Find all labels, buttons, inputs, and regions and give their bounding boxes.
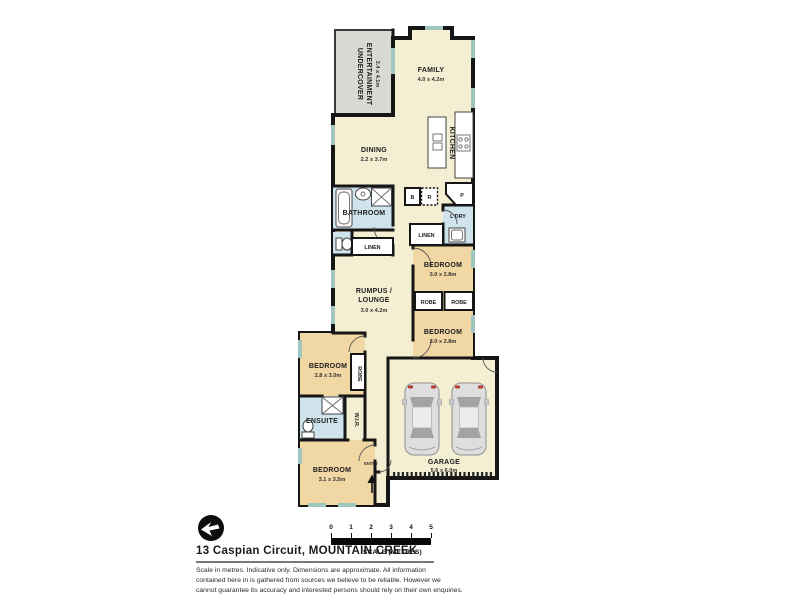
- bathroom-label: BATHROOM: [343, 210, 386, 217]
- scale-tick-2: 2: [369, 524, 373, 531]
- undercover-dims: 3.4 x 4.1m: [374, 61, 380, 88]
- scale-tick-1: 1: [349, 524, 353, 531]
- disclaimer-line: contained here in is gathered from sourc…: [196, 576, 446, 586]
- property-address: 13 Caspian Circuit, MOUNTAIN CREEK: [196, 545, 418, 557]
- wir-label: W.I.R.: [353, 413, 359, 428]
- garage-dims: 5.6 x 6.0m: [431, 468, 458, 474]
- bedroom-se-dims: 3.0 x 2.8m: [430, 339, 457, 345]
- ensuite-label: ENSUITE: [306, 418, 338, 425]
- undercover-label: UNDERCOVER: [356, 48, 363, 100]
- laundry-label: L'DRY: [450, 214, 466, 220]
- dining-label: DINING: [361, 147, 387, 154]
- pantry-label: P: [460, 193, 464, 199]
- scale-tick-4: 4: [409, 524, 413, 531]
- scale-tick-5: 5: [429, 524, 433, 531]
- bedroom-ne-dims: 3.0 x 2.8m: [430, 272, 457, 278]
- scale-bar-rule: [331, 538, 431, 545]
- bedroom-ne-label: BEDROOM: [424, 262, 462, 269]
- bedroom-sw-label: BEDROOM: [313, 467, 351, 474]
- kitchen-label: KITCHEN: [448, 127, 455, 160]
- dining-dims: 2.2 x 3.7m: [361, 157, 388, 163]
- disclaimer: Scale in metres. Indicative only. Dimens…: [196, 566, 446, 596]
- island-bench: [428, 117, 446, 168]
- floorplan-page: UNDERCOVER ENTERTAINMENT 3.4 x 4.1m FAMI…: [0, 0, 800, 600]
- appliance-r-label: R: [428, 195, 432, 201]
- bedroom-se-label: BEDROOM: [424, 329, 462, 336]
- robe-se-label: ROBE: [451, 300, 467, 306]
- bedroom-w-dims: 2.8 x 3.0m: [315, 373, 342, 379]
- scale-tick-3: 3: [389, 524, 393, 531]
- rumpus-dims: 3.0 x 4.2m: [361, 308, 388, 314]
- appliance-b-label: B: [411, 195, 415, 201]
- undercover-label2: ENTERTAINMENT: [365, 43, 372, 106]
- room-undercover-entertainment: [335, 30, 393, 115]
- floorplan-drawing: UNDERCOVER ENTERTAINMENT 3.4 x 4.1m FAMI…: [0, 0, 800, 600]
- family-label: FAMILY: [418, 67, 445, 74]
- scale-tick-0: 0: [329, 524, 333, 531]
- disclaimer-line: Scale in metres. Indicative only. Dimens…: [196, 566, 446, 576]
- robe-ne-label: ROBE: [421, 300, 437, 306]
- car-icon: [450, 383, 489, 455]
- divider-rule: [196, 561, 434, 563]
- disclaimer-line: cannot guarantee its accuracy and intere…: [196, 586, 446, 596]
- vanity-icon: [356, 188, 371, 200]
- ensuite-toilet-icon: [302, 432, 314, 438]
- linen-right-label: LINEN: [418, 233, 434, 239]
- garage-label: GARAGE: [428, 459, 460, 466]
- rumpus-label: RUMPUS /: [356, 288, 392, 295]
- linen-left-label: LINEN: [364, 245, 380, 251]
- rumpus-label2: LOUNGE: [358, 297, 390, 304]
- robe-w-label: ROBE: [356, 366, 362, 382]
- bedroom-sw-dims: 3.1 x 3.5m: [319, 477, 346, 483]
- north-arrow-icon: [197, 514, 225, 542]
- laundry-tub-icon: [449, 228, 465, 242]
- entry-label: ENTRY: [364, 461, 378, 466]
- family-dims: 4.0 x 4.2m: [418, 77, 445, 83]
- toilet-icon: [336, 238, 352, 250]
- bedroom-w-label: BEDROOM: [309, 363, 347, 370]
- car-icon: [403, 383, 442, 455]
